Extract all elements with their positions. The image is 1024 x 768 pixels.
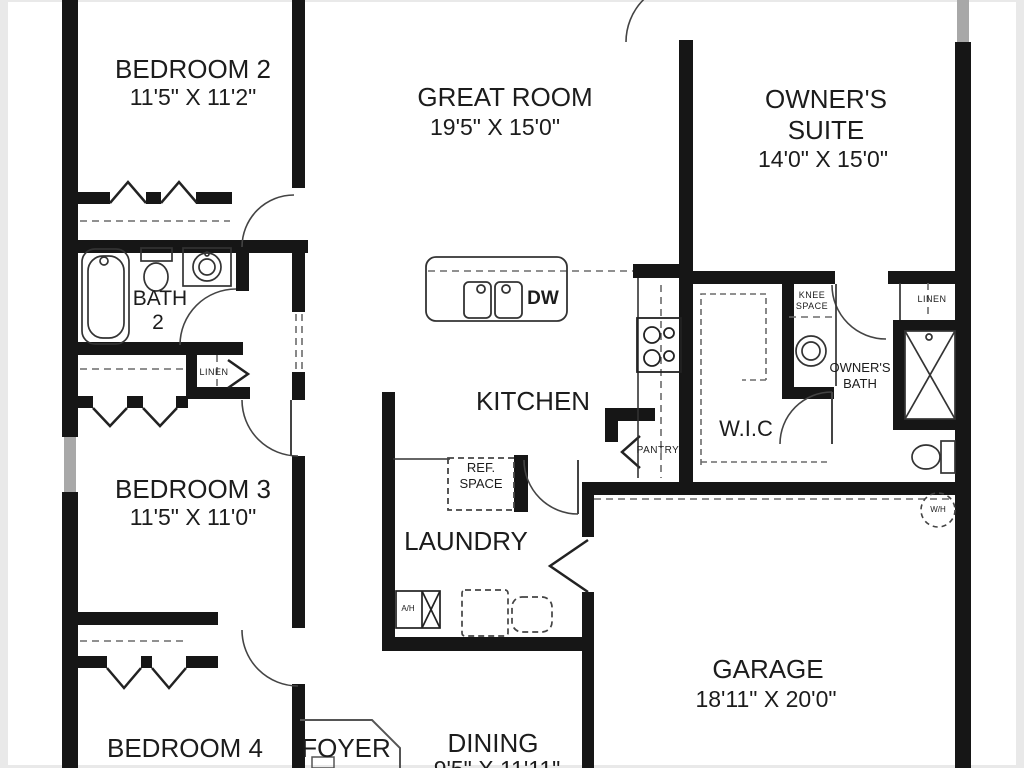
air-handler-label: A/H (401, 605, 414, 613)
laundry-door-chevron (550, 540, 588, 592)
bath2-door-arc (180, 289, 236, 345)
window-left (64, 436, 76, 494)
owners-bath-label-line1: OWNER'S (830, 361, 891, 374)
wic-label: W.I.C (719, 418, 773, 440)
owners-suite-dims: 14'0" X 15'0" (758, 148, 888, 171)
owners-suite-label-line2: SUITE (788, 117, 865, 143)
counter-lines (393, 278, 638, 478)
owners-suite-door-arc (626, 0, 686, 42)
ref-space-label-line2: SPACE (459, 477, 502, 490)
bedroom4-closet-door-chevron (152, 668, 186, 688)
bedroom2-door-arc (242, 195, 294, 247)
foyer-label: FOYER (301, 735, 391, 761)
bedroom4-label: BEDROOM 4 (107, 735, 263, 761)
laundry-label: LAUNDRY (404, 528, 528, 554)
garage-dims: 18'11" X 20'0" (695, 688, 836, 711)
bedroom2-closet-door-chevron (161, 182, 197, 203)
kitchen-hall-door-arc (524, 460, 578, 514)
bedroom3-door-arc (242, 400, 298, 456)
owners-bath-label-line2: BATH (843, 377, 877, 390)
bedroom3-label: BEDROOM 3 (115, 476, 271, 502)
bath2-bathtub-icon (82, 249, 129, 344)
shower-icon (905, 331, 955, 419)
ref-space-label-line1: REF. (467, 461, 495, 474)
great-room-label: GREAT ROOM (417, 84, 592, 110)
bedroom3-closet-door-chevron (93, 408, 127, 426)
kitchen-sink-icon (464, 282, 522, 318)
hall-linen-label: LINEN (199, 368, 228, 377)
dining-label: DINING (448, 730, 539, 756)
dryer-icon (512, 597, 552, 632)
bedroom2-dims: 11'5" X 11'2" (130, 86, 257, 109)
owners-bath-door-arc (832, 285, 886, 339)
bedroom3-closet-door-chevron (143, 408, 177, 426)
bedroom3-dims: 11'5" X 11'0" (130, 506, 257, 529)
great-room-dims: 19'5" X 15'0" (430, 116, 560, 139)
dining-dims: 9'5" X 11'11" (434, 758, 561, 768)
owners-suite-label-line1: OWNER'S (765, 86, 887, 112)
pantry-label: PANTRY (637, 446, 680, 456)
garage-label: GARAGE (712, 656, 823, 682)
floor-plan: BEDROOM 2 11'5" X 11'2" GREAT ROOM 19'5"… (0, 0, 1024, 768)
water-heater-label: W/H (930, 506, 946, 514)
bedroom2-label: BEDROOM 2 (115, 56, 271, 82)
washer-icon (462, 590, 508, 636)
bath2-sink-icon (183, 248, 231, 286)
knee-space-label-line1: KNEE (799, 291, 826, 300)
wic-door-arc (780, 392, 832, 444)
bedroom4-closet-door-chevron (107, 668, 141, 688)
bath2-label-line2: 2 (152, 312, 164, 333)
owners-bath-toilet-icon (912, 441, 955, 473)
stove-icon (637, 318, 681, 372)
hall-linen-door-chevron (228, 360, 248, 388)
window-right (957, 0, 969, 44)
bath2-label-line1: BATH (133, 288, 187, 309)
kitchen-label: KITCHEN (476, 388, 590, 414)
dishwasher-label: DW (527, 289, 559, 308)
knee-space-label-line2: SPACE (796, 302, 828, 311)
bedroom2-closet-door-chevron (110, 182, 146, 203)
bedroom4-door-arc (242, 630, 298, 686)
bath2-toilet-icon (141, 248, 172, 291)
owners-linen-label: LINEN (917, 295, 946, 304)
